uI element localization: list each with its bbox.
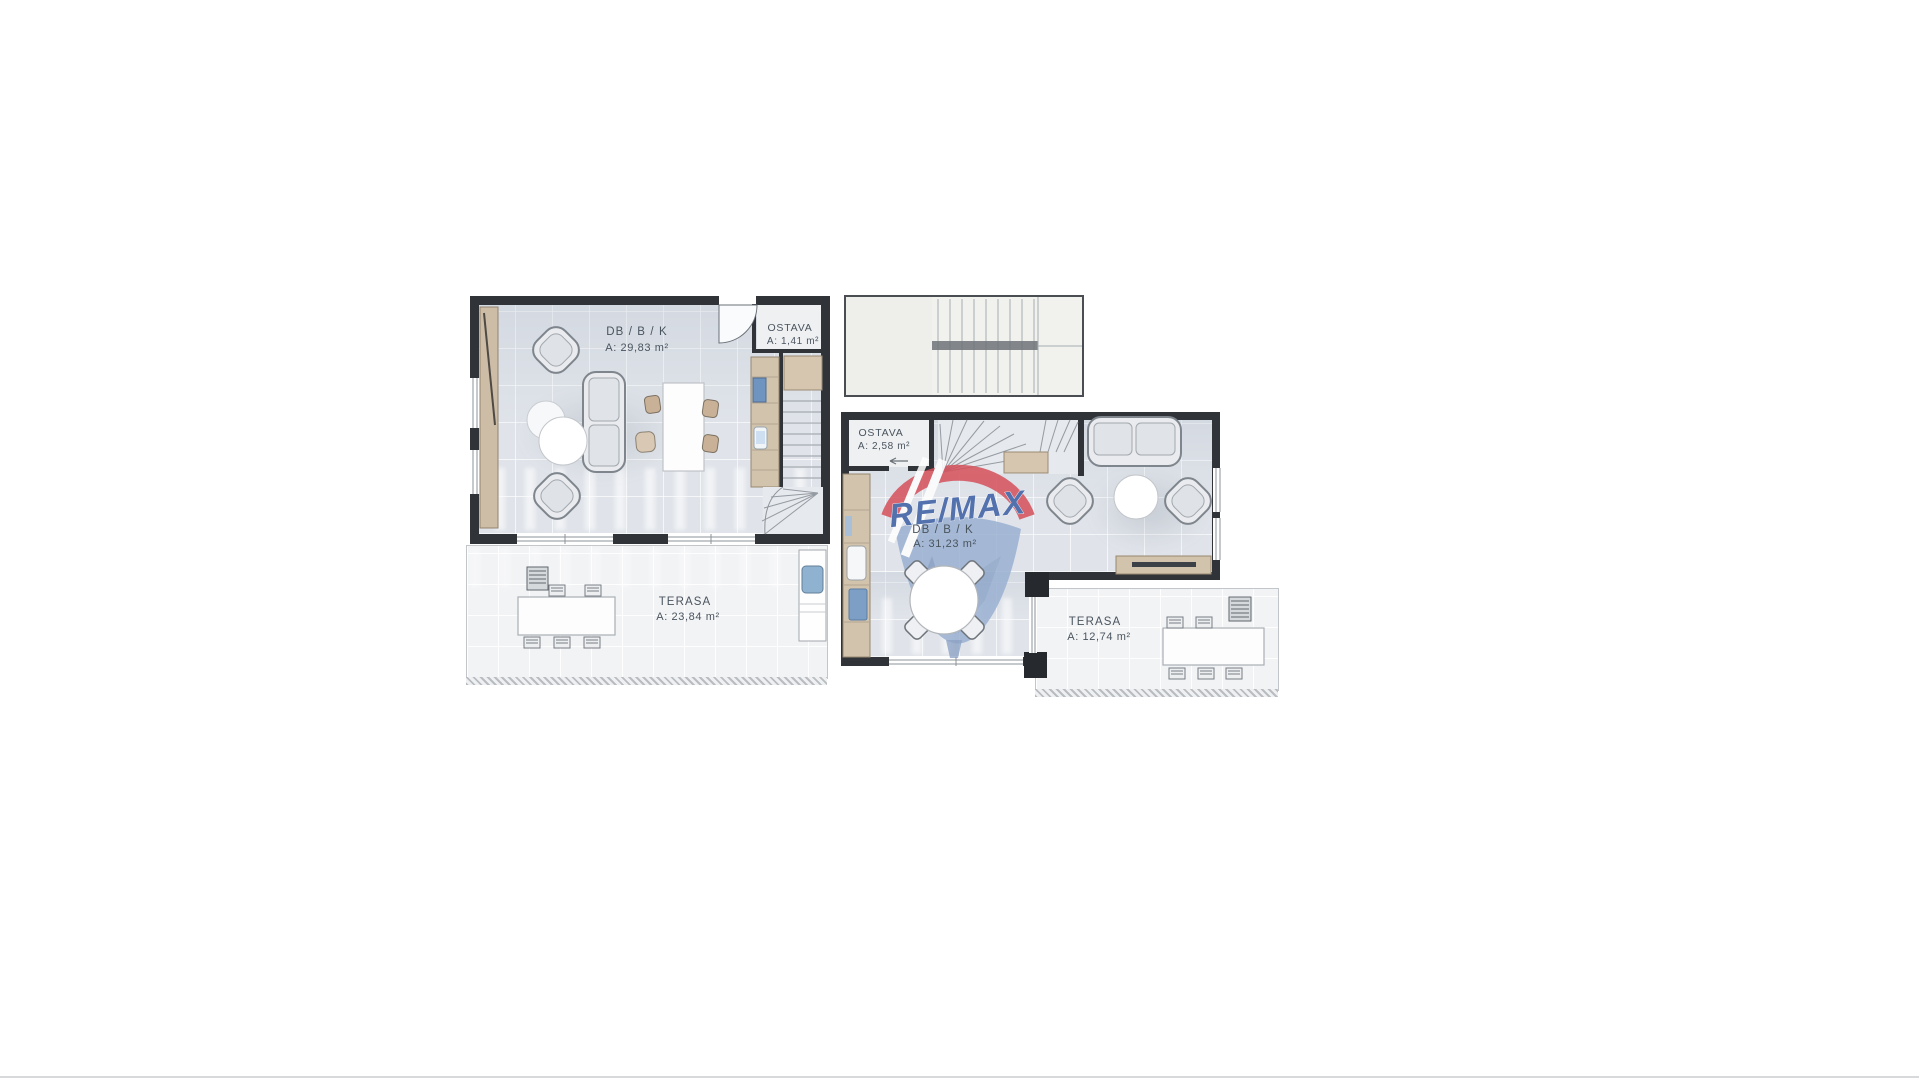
coffee-table	[1114, 475, 1158, 519]
cooktop	[753, 378, 766, 402]
stair-landing	[784, 356, 822, 390]
sofa-cushion	[589, 425, 619, 466]
window	[1213, 468, 1222, 512]
stair-hall-landing-lines	[1038, 297, 1082, 395]
dining-chair	[702, 399, 719, 418]
floor-plan: RE/MAX DB / B / K A: 29,83 m² OSTAVA A: …	[0, 0, 1919, 1080]
pillar	[1025, 572, 1049, 597]
wall	[470, 296, 719, 305]
wall	[929, 412, 934, 471]
door-swing-arrow	[890, 458, 908, 464]
lounge-chair	[1160, 473, 1217, 530]
terrace-sink	[802, 566, 823, 593]
wall	[1048, 572, 1106, 580]
right-terrace-furniture	[1163, 597, 1264, 679]
appliance-small	[845, 516, 852, 536]
tv	[1132, 562, 1196, 567]
coffee-table	[539, 417, 587, 465]
dining-chair	[702, 434, 719, 453]
wardrobe-body	[480, 307, 498, 528]
sofa-cushion	[1094, 423, 1132, 455]
stair-hall-mid-strip	[932, 341, 1038, 350]
wall	[841, 657, 889, 666]
left-terrace-area: A: 23,84 m²	[626, 611, 750, 623]
left-living-area: A: 29,83 m²	[577, 342, 697, 354]
stair-hall-block	[845, 296, 1083, 396]
wall	[752, 349, 830, 353]
sofa-cushion	[1136, 423, 1175, 455]
stair-hall-concrete	[846, 297, 932, 395]
window	[469, 378, 480, 428]
stair-treads	[783, 401, 821, 478]
lounge-chair	[529, 468, 586, 525]
dining-chair	[635, 431, 656, 453]
outdoor-table	[518, 597, 615, 635]
left-storage-area: A: 1,41 m²	[754, 336, 832, 347]
sink-basin	[756, 431, 765, 444]
wall	[470, 534, 517, 544]
left-wardrobe	[480, 307, 498, 528]
wall	[843, 466, 889, 471]
wall	[756, 296, 830, 305]
right-living-area: A: 31,23 m²	[884, 538, 1006, 550]
right-kitchen	[843, 474, 870, 657]
terrace-cabinet	[799, 550, 826, 641]
dishwasher	[849, 589, 867, 620]
lounge-chair	[1042, 473, 1099, 530]
left-kitchen	[751, 357, 779, 487]
wall	[1078, 412, 1084, 476]
right-dining-set	[903, 559, 986, 641]
left-terrace-label: TERASA	[626, 596, 744, 608]
dining-table	[663, 383, 704, 471]
window	[469, 450, 480, 494]
entry-door-swing	[719, 305, 757, 343]
wall	[613, 534, 668, 544]
balloon-basket	[946, 640, 962, 658]
round-dining-table	[910, 566, 978, 634]
oven	[847, 546, 866, 580]
dining-chair	[644, 395, 661, 414]
right-storage-label: OSTAVA	[844, 427, 918, 439]
stair-landing	[1004, 452, 1048, 473]
window	[1213, 518, 1222, 560]
sofa-cushion	[589, 378, 619, 421]
right-terrace-label: TERASA	[1036, 616, 1154, 628]
wall	[779, 353, 783, 490]
left-storage-label: OSTAVA	[754, 322, 826, 334]
right-storage-area: A: 2,58 m²	[844, 441, 924, 452]
pillar	[1024, 652, 1047, 678]
outdoor-table	[1163, 628, 1264, 665]
lounge-chair	[528, 322, 585, 379]
wall	[755, 534, 830, 544]
right-terrace-area: A: 12,74 m²	[1036, 631, 1162, 643]
right-living-label: DB / B / K	[884, 524, 1002, 536]
left-living-label: DB / B / K	[577, 326, 697, 338]
